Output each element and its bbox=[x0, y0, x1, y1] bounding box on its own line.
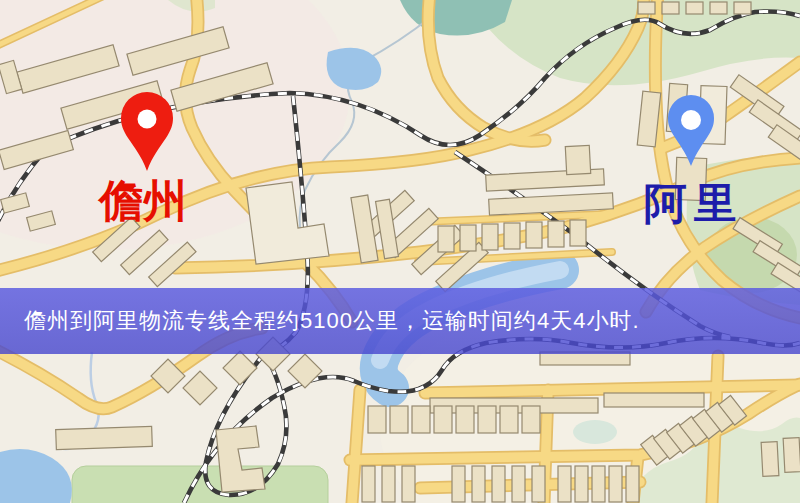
route-info-banner: 儋州到阿里物流专线全程约5100公里，运输时间约4天4小时. bbox=[0, 288, 800, 354]
origin-label: 儋州 bbox=[97, 177, 187, 226]
destination-label: 阿里 bbox=[644, 180, 744, 227]
map-canvas: 儋州 阿里 bbox=[0, 0, 800, 503]
destination-pin-dot bbox=[681, 110, 701, 130]
origin-pin-dot bbox=[138, 110, 157, 129]
map-screenshot: 儋州 阿里 儋州到阿里物流专线全程约5100公里，运输时间约4天4小时. bbox=[0, 0, 800, 503]
route-info-text: 儋州到阿里物流专线全程约5100公里，运输时间约4天4小时. bbox=[24, 306, 640, 336]
destination-pin-icon bbox=[668, 95, 714, 166]
